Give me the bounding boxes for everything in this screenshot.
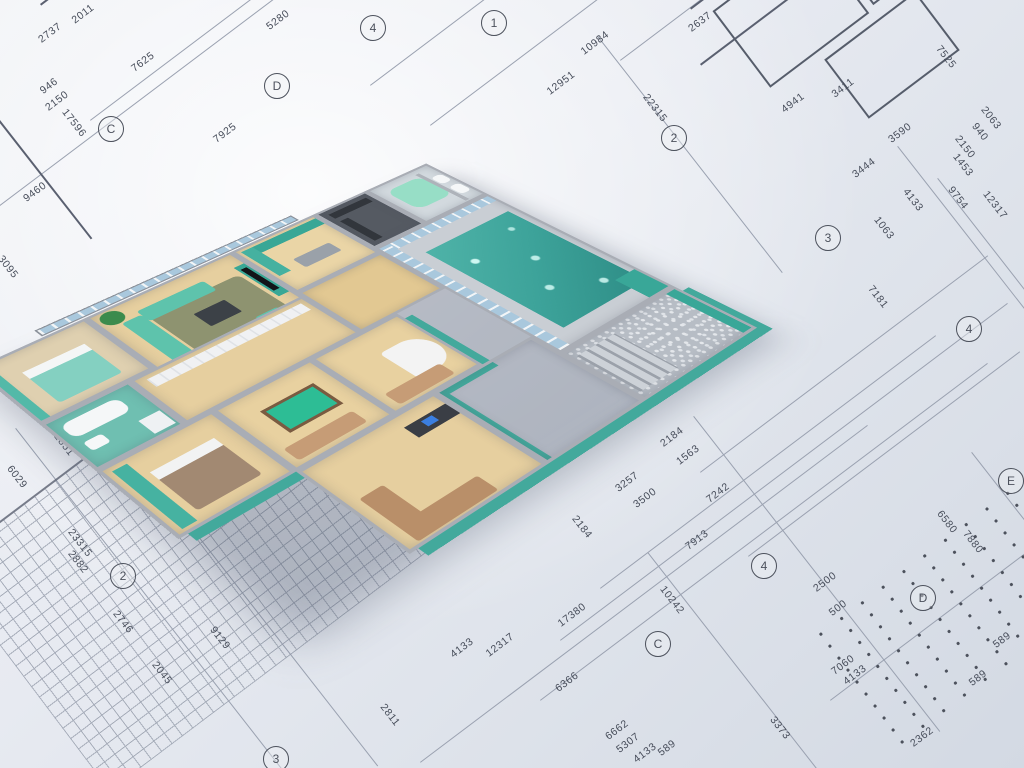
dimension-label: 6366	[553, 669, 581, 694]
grid-axis-bubble: 3	[815, 225, 841, 251]
dimension-label: 12317	[484, 631, 517, 660]
dimension-label: 9754	[945, 184, 970, 212]
blueprint-line	[597, 36, 782, 273]
sink	[83, 434, 111, 451]
dimension-label: 7625	[129, 49, 157, 74]
dimension-label: 4133	[448, 635, 476, 660]
grid-axis-bubble: 2	[661, 125, 687, 151]
blueprint-line	[647, 552, 832, 768]
dimension-label: 2637	[686, 9, 714, 34]
dimension-label: 3257	[613, 469, 641, 494]
dimension-label: 7181	[865, 283, 890, 311]
dimension-label: 22315	[640, 92, 669, 125]
blueprint-line	[700, 255, 988, 472]
grid-axis-bubble: D	[264, 73, 290, 99]
grid-axis-bubble: 2	[110, 563, 136, 589]
dimension-label: 589	[656, 737, 679, 758]
dimension-label: 17596	[59, 107, 88, 140]
architectural-visualization: { "scene": { "type": "3d-floor-plan-rend…	[0, 0, 1024, 768]
dimension-label: 4133	[900, 186, 925, 214]
dimension-label: 5280	[264, 7, 292, 32]
dimension-label: 7925	[211, 120, 239, 145]
pool-water	[426, 211, 646, 328]
dimension-label: 7913	[683, 527, 711, 552]
dimension-label: 3500	[631, 485, 659, 510]
dimension-label: 3590	[886, 120, 914, 145]
grid-axis-bubble: C	[98, 116, 124, 142]
parapet-teal	[666, 289, 751, 333]
dimension-label: 1563	[674, 442, 702, 467]
blueprint-line	[40, 0, 193, 6]
dimension-label: 17380	[556, 601, 589, 630]
dimension-label: 1063	[871, 214, 896, 242]
grid-axis-bubble: D	[910, 585, 936, 611]
dimension-label: 7242	[704, 480, 732, 505]
grid-axis-bubble: 3	[263, 746, 289, 768]
dimension-label: 3444	[850, 155, 878, 180]
blueprint-line	[937, 178, 1024, 510]
dimension-label: 12317	[980, 189, 1009, 222]
dimension-label: 3095	[0, 253, 21, 281]
closet-shelves	[328, 198, 372, 219]
dimension-label: 2184	[658, 424, 686, 449]
dimension-label: 9460	[21, 179, 49, 204]
dimension-label: 2184	[569, 513, 594, 541]
dimension-label: 6029	[4, 463, 29, 491]
kitchen-island	[293, 243, 342, 268]
grid-axis-bubble: 4	[956, 316, 982, 342]
grid-axis-bubble: 1	[481, 10, 507, 36]
dimension-label: 10242	[657, 584, 686, 617]
grid-axis-bubble: 4	[360, 15, 386, 41]
dimension-label: 2811	[378, 701, 403, 728]
dimension-label: 2737	[36, 20, 64, 45]
dimension-label: 12951	[545, 69, 578, 98]
dimension-label: 3373	[767, 714, 792, 742]
dimension-label: 2011	[69, 2, 96, 27]
washing-machine	[138, 410, 176, 433]
dimension-label: 10984	[579, 29, 612, 58]
grid-axis-bubble: C	[645, 631, 671, 657]
grid-axis-bubble: E	[998, 468, 1024, 494]
grid-axis-bubble: 4	[751, 553, 777, 579]
